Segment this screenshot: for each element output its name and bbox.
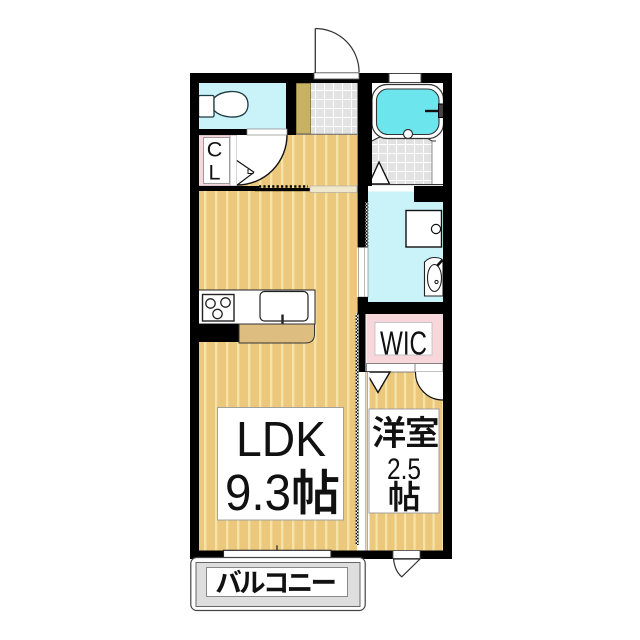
svg-text:L: L <box>209 161 221 185</box>
svg-text:2.5: 2.5 <box>387 453 421 486</box>
svg-text:9.3: 9.3 <box>225 464 291 521</box>
svg-text:C: C <box>207 138 223 162</box>
svg-text:WIC: WIC <box>380 325 427 362</box>
svg-text:LDK: LDK <box>236 413 326 467</box>
